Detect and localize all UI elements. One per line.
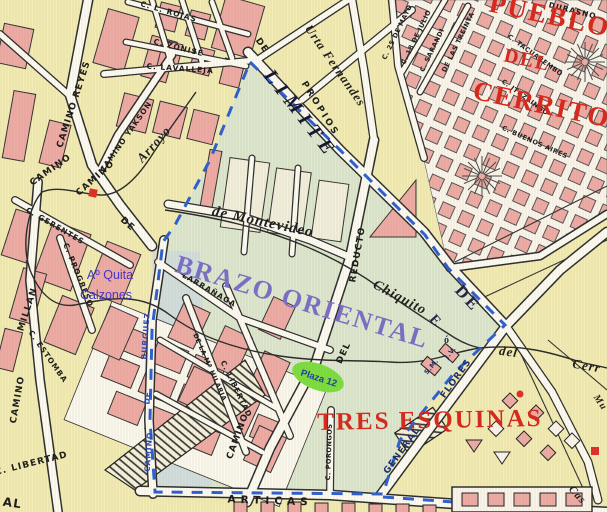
- scanline-texture: [0, 0, 607, 512]
- map-stage: CAMINO REYES C. L. ROJAS C. ZONISE C. LA…: [0, 0, 607, 512]
- historic-map-svg: CAMINO REYES C. L. ROJAS C. ZONISE C. LA…: [0, 0, 607, 512]
